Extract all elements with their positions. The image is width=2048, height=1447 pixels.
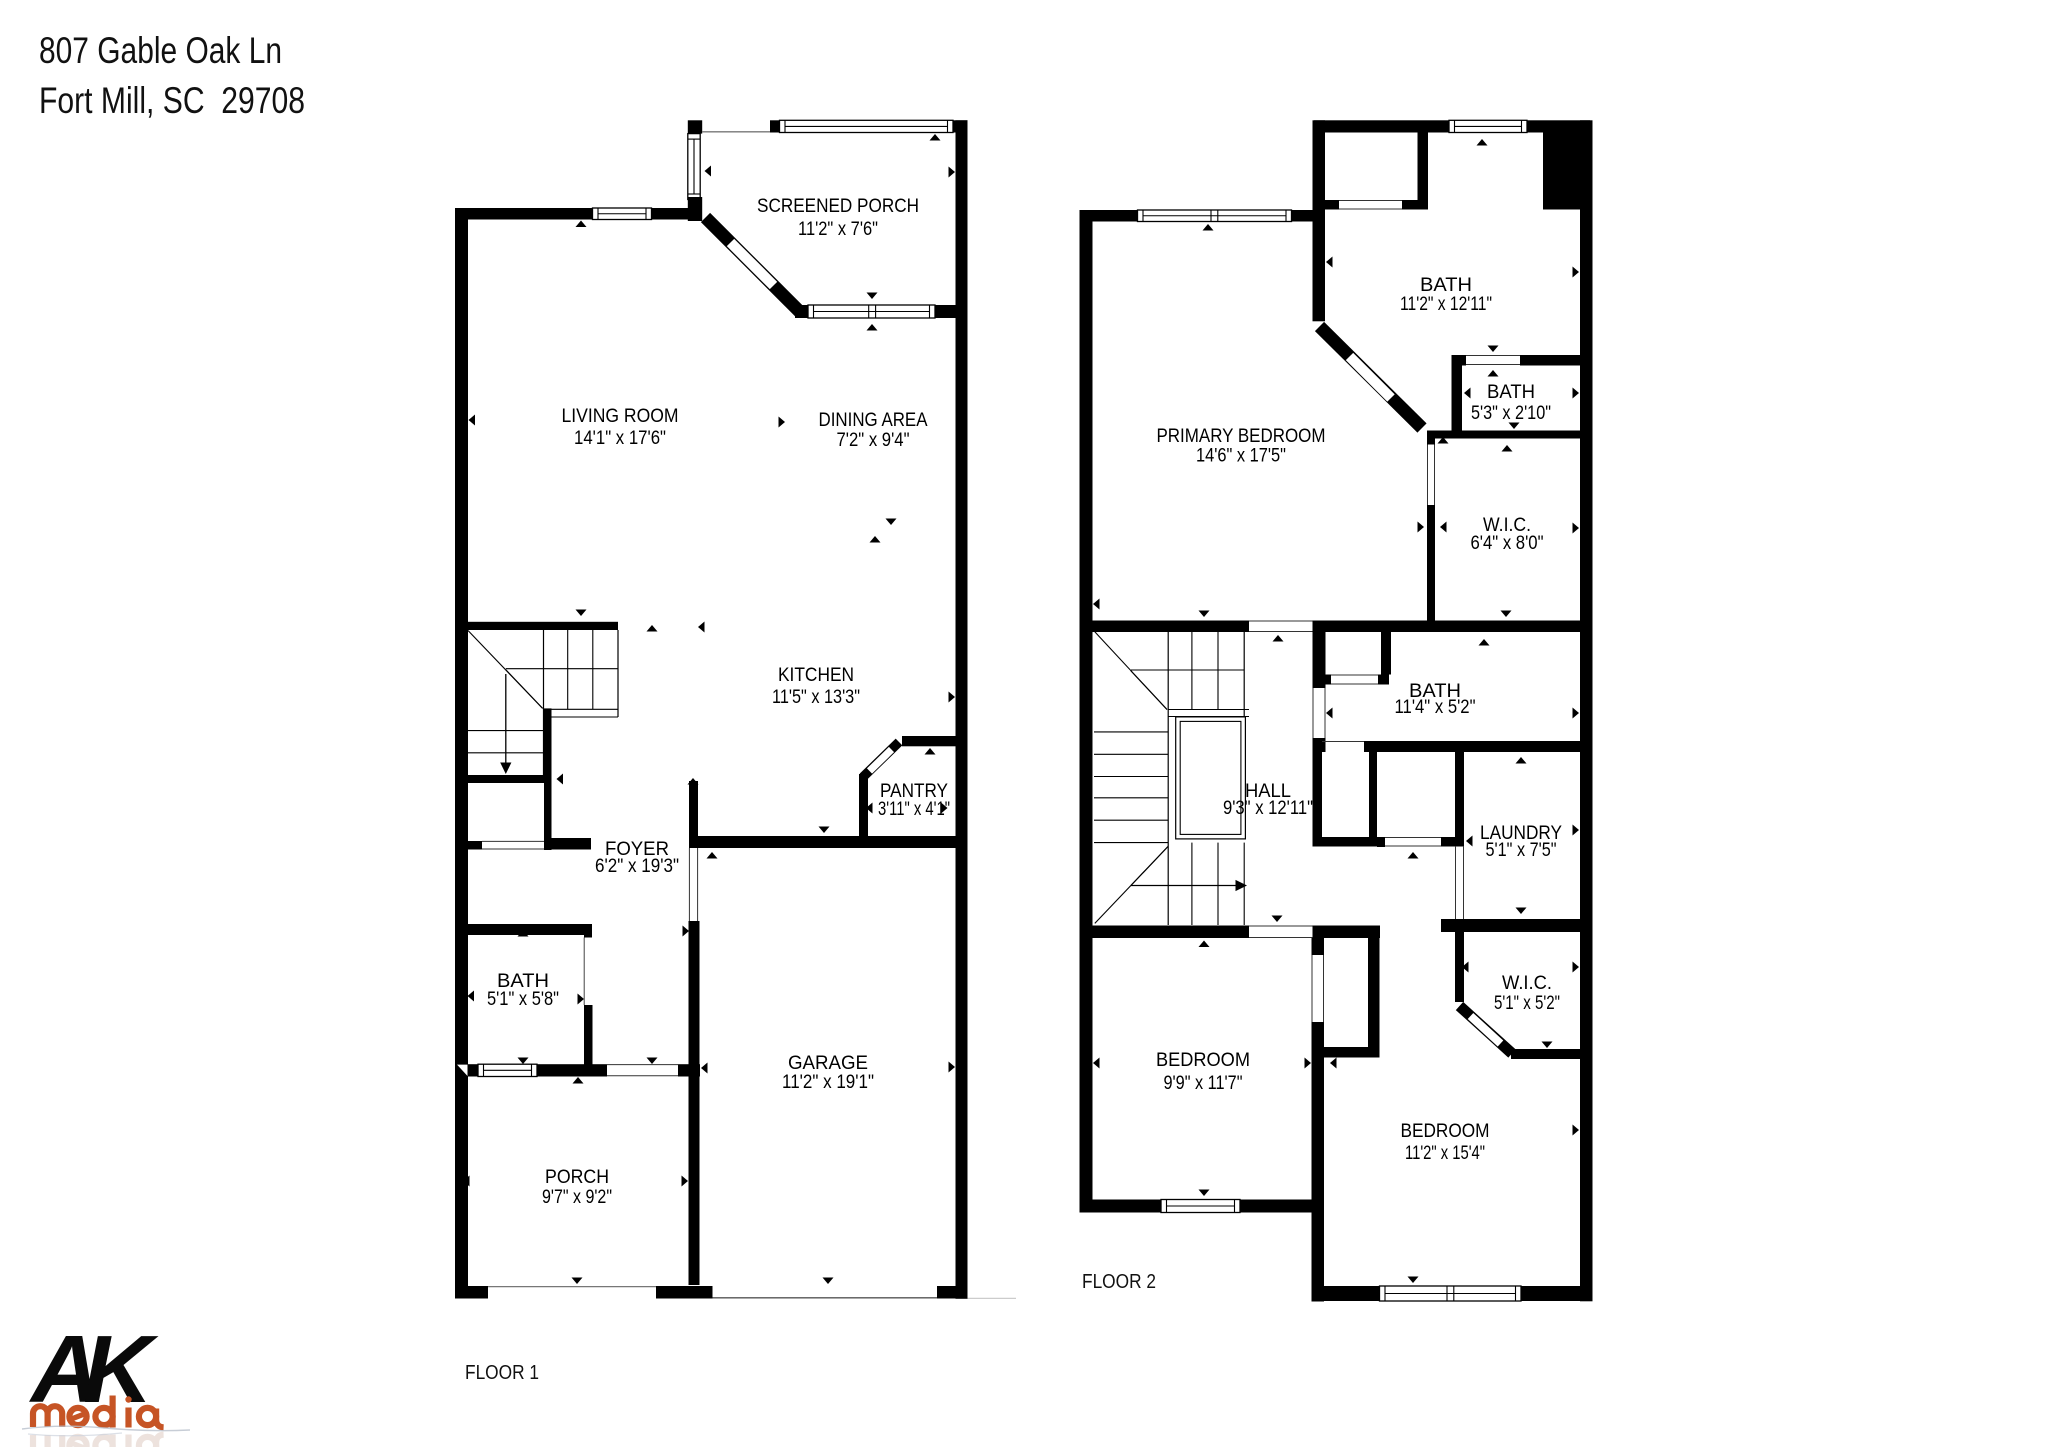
svg-text:GARAGE: GARAGE <box>788 1053 868 1074</box>
svg-text:5'1" x 5'8": 5'1" x 5'8" <box>487 989 559 1010</box>
svg-text:LIVING ROOM: LIVING ROOM <box>562 406 679 427</box>
svg-text:11'4" x 5'2": 11'4" x 5'2" <box>1395 697 1476 718</box>
svg-text:FLOOR 1: FLOOR 1 <box>465 1362 539 1384</box>
svg-text:11'2" x 12'11": 11'2" x 12'11" <box>1400 294 1492 315</box>
svg-text:BATH: BATH <box>1420 275 1472 296</box>
svg-text:11'2" x 19'1": 11'2" x 19'1" <box>782 1072 874 1093</box>
svg-text:SCREENED PORCH: SCREENED PORCH <box>757 196 919 217</box>
svg-text:11'5" x 13'3": 11'5" x 13'3" <box>772 687 860 708</box>
svg-text:BEDROOM: BEDROOM <box>1156 1050 1250 1071</box>
svg-text:9'9" x 11'7": 9'9" x 11'7" <box>1164 1073 1243 1094</box>
svg-text:KITCHEN: KITCHEN <box>778 665 854 686</box>
svg-text:BEDROOM: BEDROOM <box>1401 1121 1490 1142</box>
svg-text:9'3" x 12'11": 9'3" x 12'11" <box>1223 798 1313 819</box>
svg-text:5'1" x 5'2": 5'1" x 5'2" <box>1494 993 1560 1014</box>
svg-text:DINING AREA: DINING AREA <box>819 410 928 431</box>
svg-text:9'7" x 9'2": 9'7" x 9'2" <box>542 1187 612 1208</box>
svg-text:W.I.C.: W.I.C. <box>1502 973 1552 994</box>
svg-text:5'3" x 2'10": 5'3" x 2'10" <box>1471 403 1551 424</box>
svg-text:Fort Mill, SC 29708: Fort Mill, SC 29708 <box>39 80 305 121</box>
svg-text:11'2" x 7'6": 11'2" x 7'6" <box>798 219 878 240</box>
svg-text:11'2" x 15'4": 11'2" x 15'4" <box>1405 1143 1485 1164</box>
svg-text:5'1" x 7'5": 5'1" x 7'5" <box>1486 840 1557 861</box>
svg-text:14'6" x 17'5": 14'6" x 17'5" <box>1196 445 1286 466</box>
svg-text:7'2" x 9'4": 7'2" x 9'4" <box>837 430 910 451</box>
svg-text:BATH: BATH <box>1487 382 1535 403</box>
svg-text:PRIMARY BEDROOM: PRIMARY BEDROOM <box>1157 426 1326 447</box>
svg-text:PORCH: PORCH <box>545 1167 609 1188</box>
svg-text:6'4" x 8'0": 6'4" x 8'0" <box>1471 533 1544 554</box>
svg-text:14'1" x 17'6": 14'1" x 17'6" <box>574 428 666 449</box>
svg-text:FLOOR 2: FLOOR 2 <box>1082 1271 1156 1293</box>
svg-text:6'2" x 19'3": 6'2" x 19'3" <box>595 856 679 877</box>
svg-text:3'11" x 4'1": 3'11" x 4'1" <box>878 799 950 820</box>
svg-text:807 Gable Oak Ln: 807 Gable Oak Ln <box>39 30 282 71</box>
